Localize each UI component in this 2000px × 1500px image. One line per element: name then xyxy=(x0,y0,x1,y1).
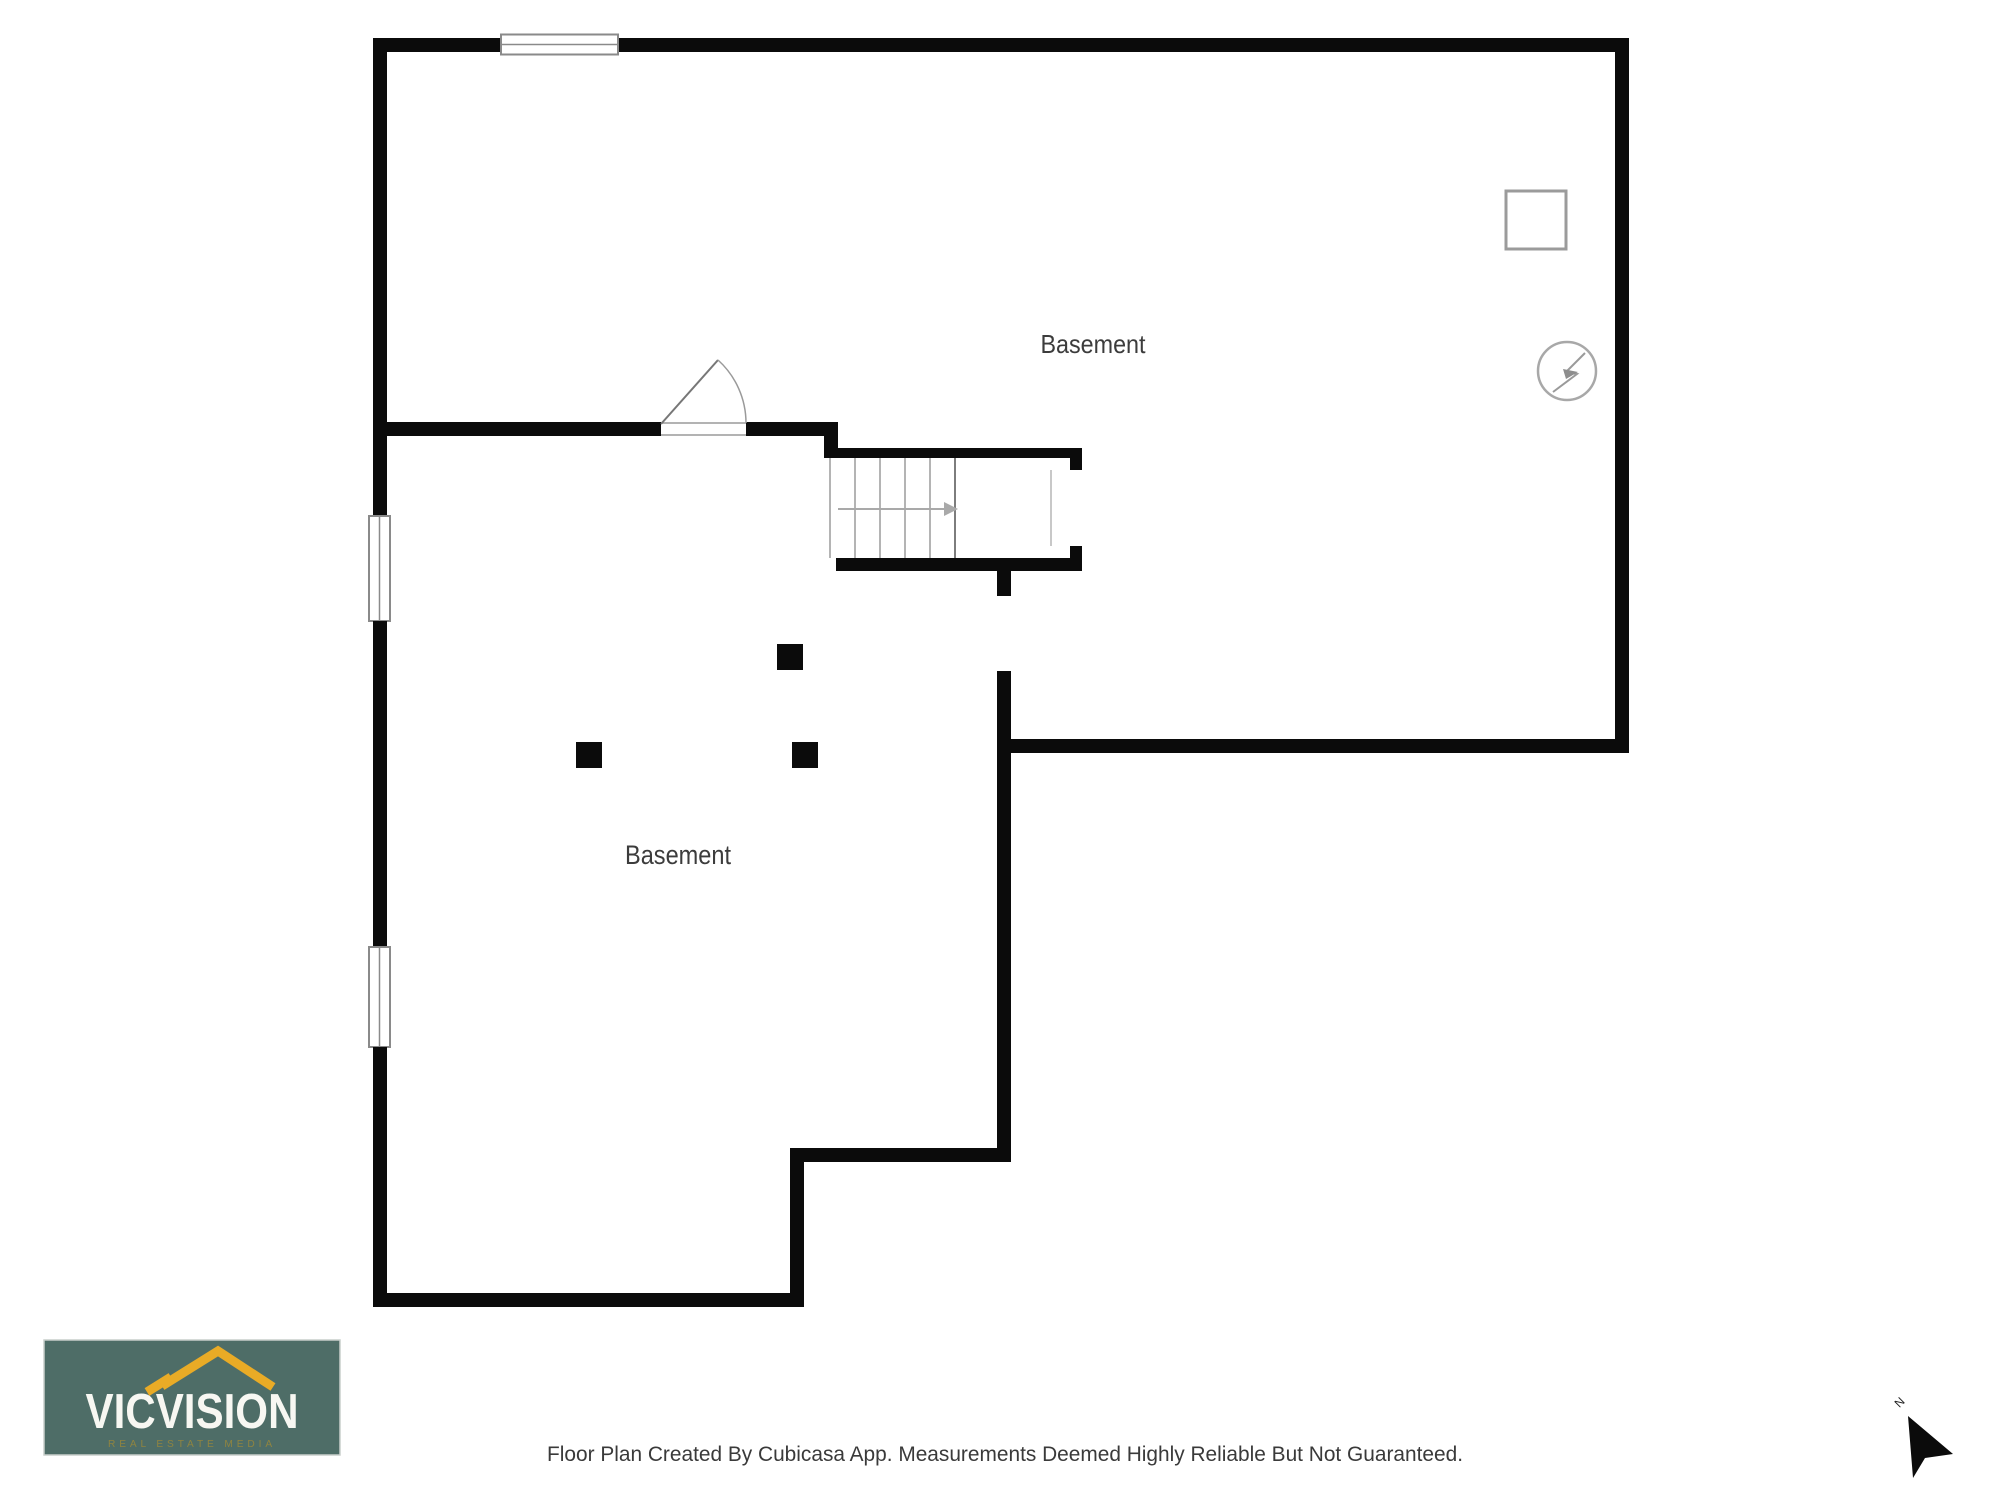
svg-text:Basement: Basement xyxy=(1041,329,1147,359)
svg-text:Basement: Basement xyxy=(625,840,731,870)
svg-text:Floor Plan Created By Cubicasa: Floor Plan Created By Cubicasa App. Meas… xyxy=(547,1443,1463,1466)
svg-text:VICVISION: VICVISION xyxy=(86,1385,299,1439)
svg-text:REAL ESTATE MEDIA: REAL ESTATE MEDIA xyxy=(108,1438,276,1450)
svg-text:N: N xyxy=(1892,1394,1908,1410)
